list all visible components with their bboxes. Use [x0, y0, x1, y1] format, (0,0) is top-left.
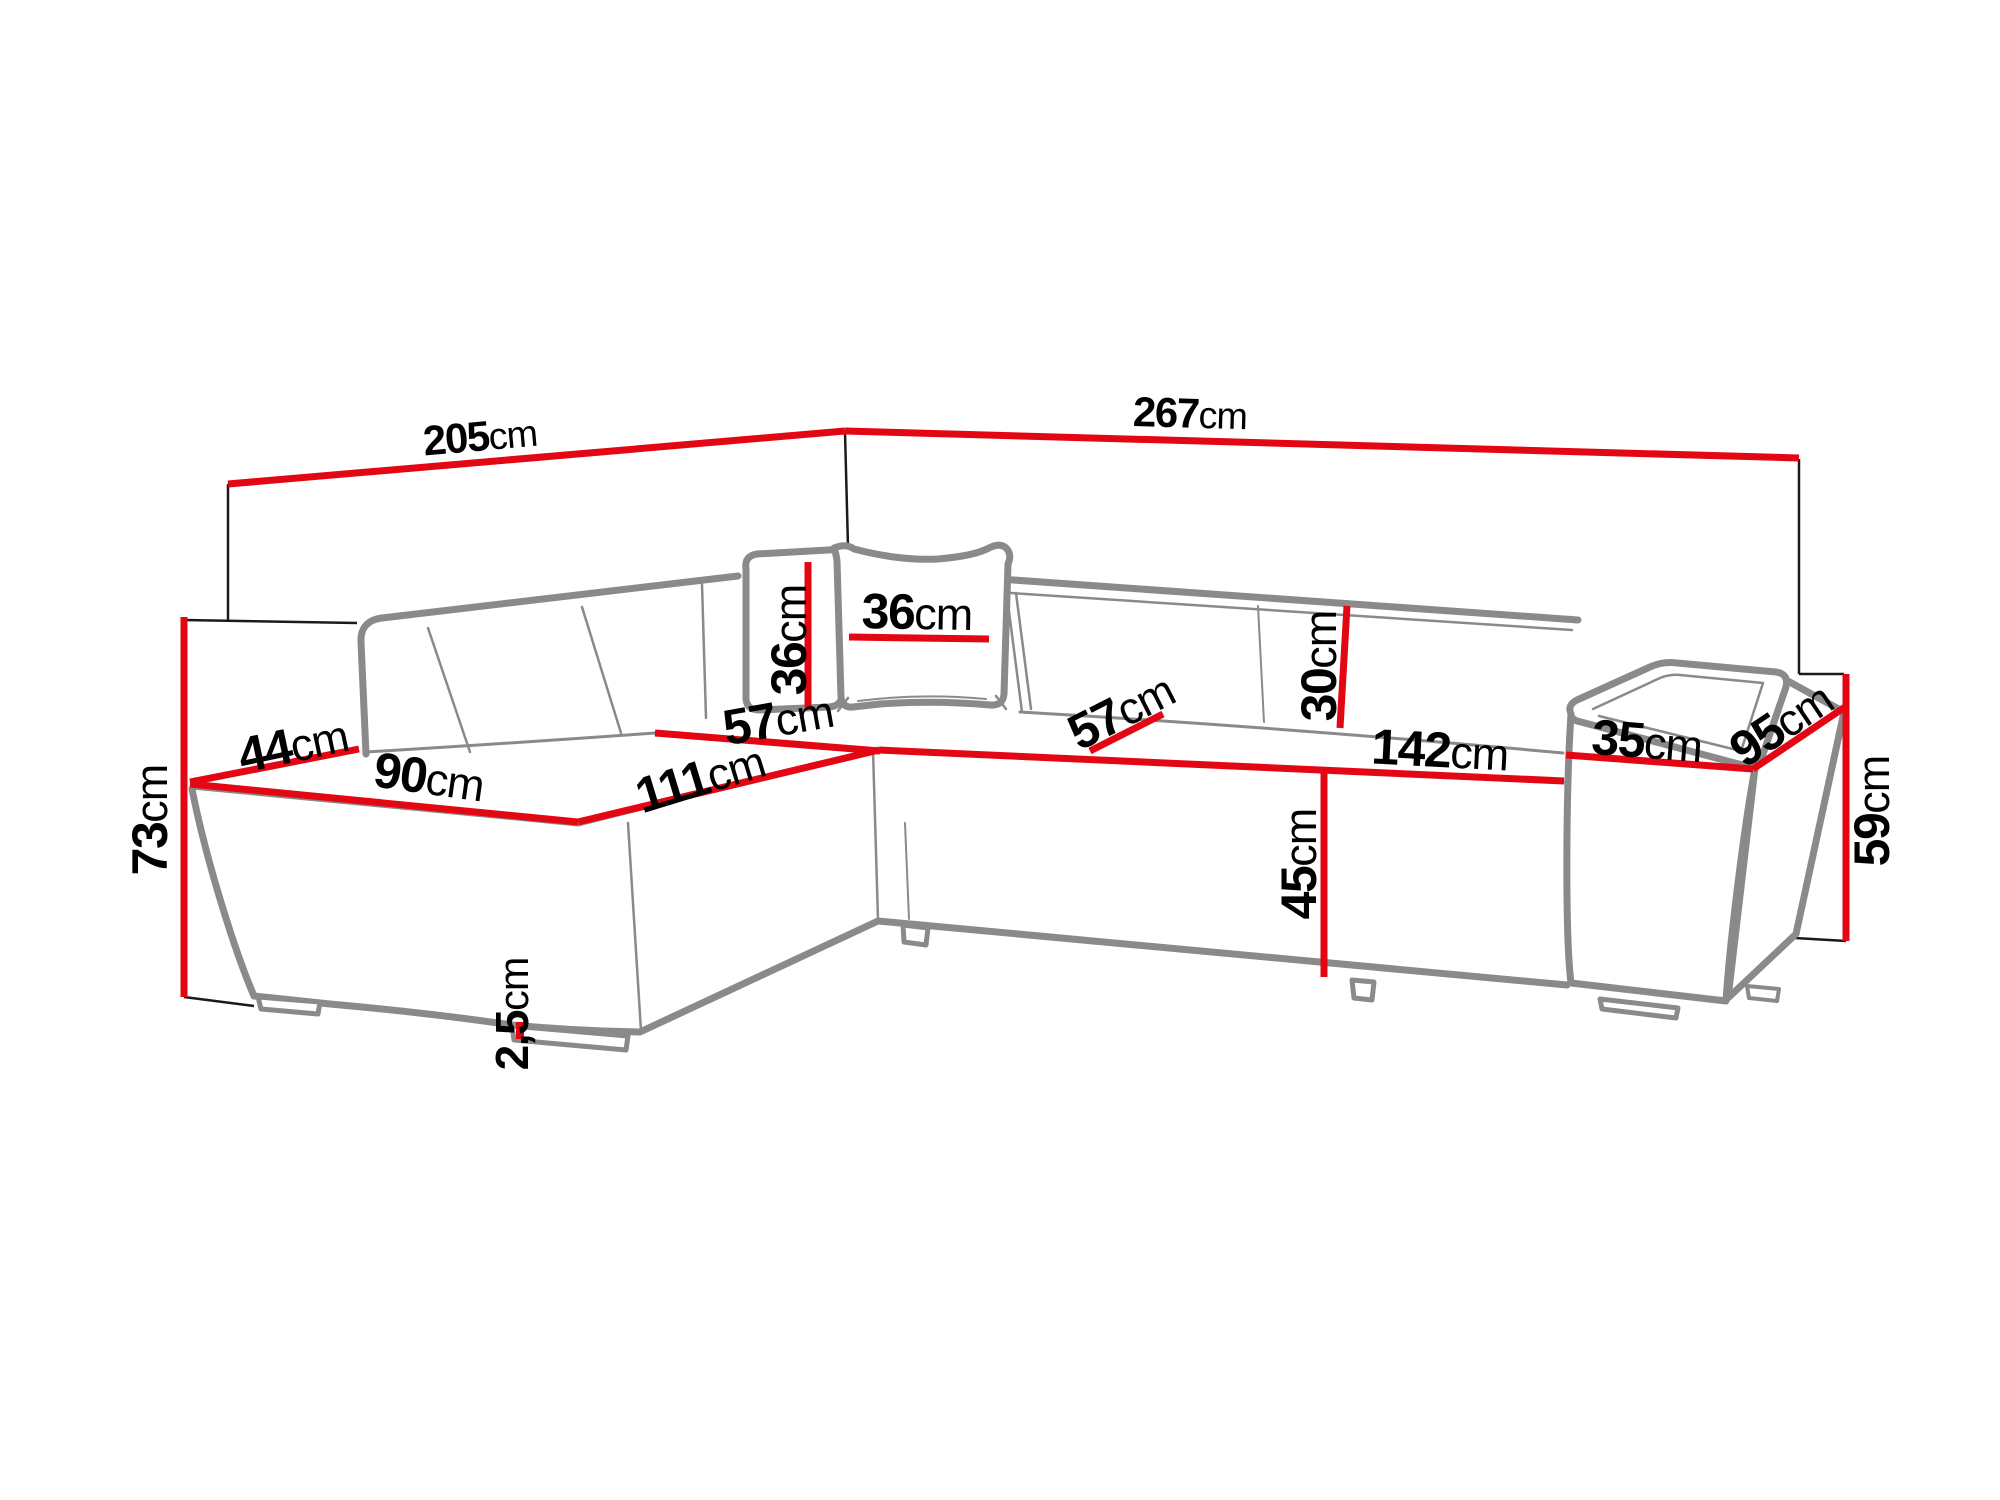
- main-leg-1: [903, 925, 928, 945]
- dim-value: 205: [421, 412, 490, 465]
- main-leg-2: [1352, 980, 1374, 1000]
- corner-panel-edge: [702, 584, 706, 718]
- dim-unit: cm: [1198, 395, 1248, 438]
- dim-label-leg-height: 2,5cm: [489, 958, 535, 1071]
- dim-value: 142: [1370, 718, 1452, 778]
- dim-label-armrest-width: 35cm: [1590, 712, 1704, 771]
- armrest-foot-2: [1747, 986, 1779, 1001]
- dim-unit: cm: [423, 753, 488, 812]
- main-corner-seam: [905, 823, 909, 919]
- dim-unit: cm: [1295, 611, 1346, 669]
- dim-unit: cm: [126, 765, 177, 823]
- dim-unit: cm: [1449, 727, 1510, 781]
- dim-label-seat-width: 142cm: [1370, 721, 1509, 778]
- dim-value: 30: [1291, 669, 1347, 722]
- dim-label-total-height: 73cm: [125, 765, 175, 876]
- chaise-backrest-top: [361, 576, 738, 754]
- dim-value: 35: [1590, 709, 1647, 769]
- sofa-dimension-diagram: 205cm 267cm 73cm 44cm 90cm 111cm 57cm 36…: [0, 0, 2000, 1500]
- chaise-backrest-crease-2: [582, 607, 621, 733]
- dim-unit: cm: [765, 585, 816, 643]
- main-backrest-mid-seam: [1258, 606, 1264, 722]
- chaise-backrest-crease-1: [428, 628, 470, 752]
- dim-value: 45: [1271, 867, 1327, 920]
- dim-unit: cm: [1848, 756, 1899, 814]
- dim-unit: cm: [1275, 809, 1326, 867]
- dim-unit: cm: [1642, 717, 1704, 772]
- main-backrest-top: [985, 578, 1578, 620]
- chaise-side-bottom-edge: [640, 921, 878, 1032]
- dim-value: 59: [1844, 814, 1900, 867]
- ref-line-height-bottom: [184, 997, 254, 1006]
- main-bottom-edge: [878, 921, 1567, 985]
- armrest-foot-1: [1600, 999, 1678, 1018]
- dim-label-backrest-height: 30cm: [1294, 611, 1344, 722]
- dim-label-back-width-right: 267cm: [1132, 391, 1247, 437]
- dim-label-pillow-height: 36cm: [764, 585, 814, 696]
- ref-line-corner-drop: [845, 432, 848, 547]
- dim-value: 36: [761, 643, 817, 696]
- dim-label-back-width-left: 205cm: [421, 411, 538, 464]
- dim-value: 267: [1132, 388, 1199, 437]
- dim-line-back-width-right: [845, 431, 1799, 458]
- dim-value: 36: [861, 583, 915, 640]
- dim-value: 90: [370, 742, 430, 805]
- dim-unit: cm: [914, 588, 973, 640]
- dim-unit: cm: [491, 958, 537, 1011]
- ref-line-height-top: [184, 620, 357, 623]
- dim-value: 2,5: [486, 1011, 538, 1070]
- dim-unit: cm: [487, 413, 539, 459]
- chaise-front-corner-seam: [628, 823, 641, 1031]
- dim-value: 73: [122, 823, 178, 876]
- main-corner-edge: [873, 750, 878, 920]
- dim-value: 57: [719, 692, 781, 756]
- dim-label-pillow-width: 36cm: [861, 586, 972, 638]
- chaise-leg-1: [258, 997, 320, 1014]
- dim-label-seat-front-height: 45cm: [1274, 809, 1324, 920]
- dim-label-armrest-height: 59cm: [1847, 756, 1897, 867]
- chaise-left-face-edge: [192, 789, 254, 996]
